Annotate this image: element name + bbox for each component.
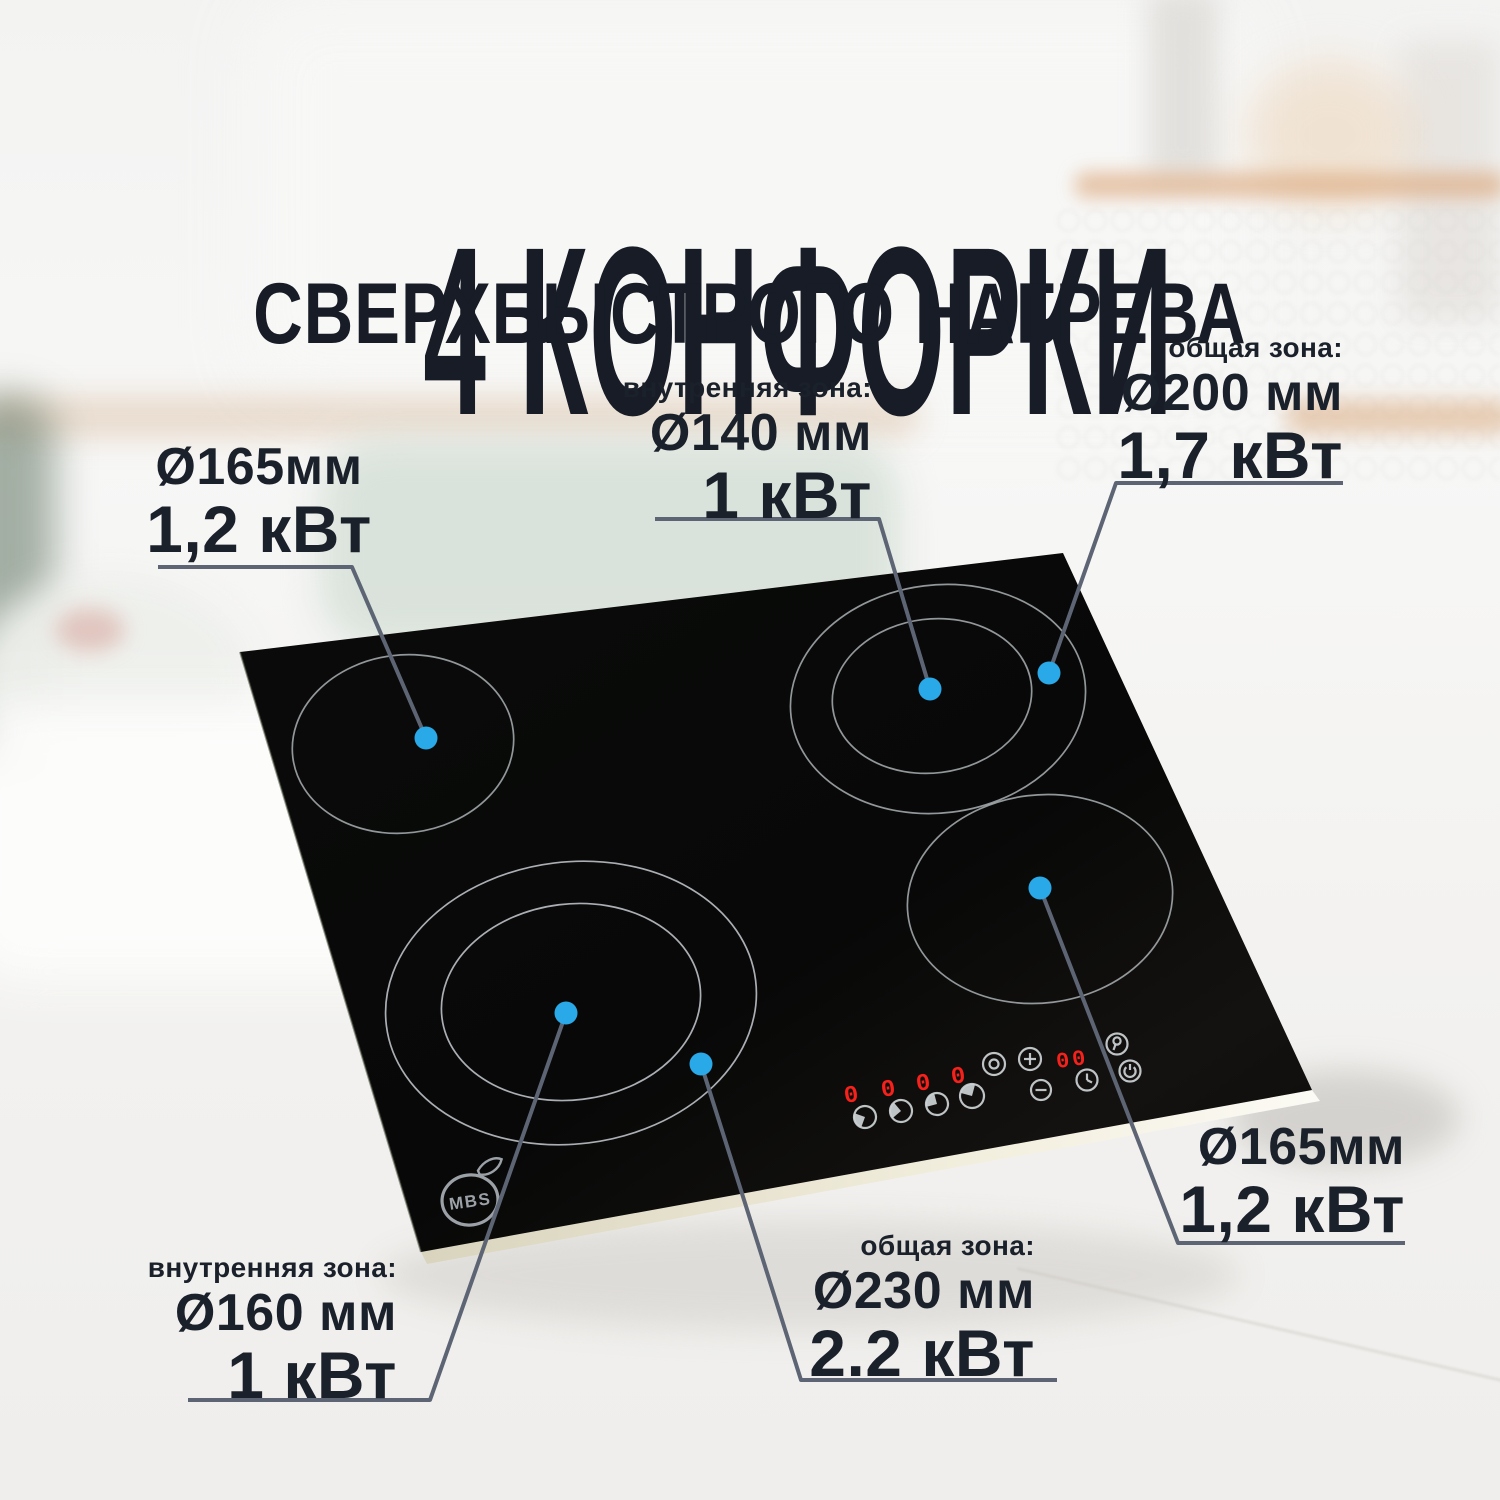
burner-diameter: Ø165мм bbox=[1105, 1120, 1405, 1174]
burner-power: 2.2 кВт bbox=[715, 1318, 1035, 1388]
callout-label-bottom-left-inner-zone: внутренняя зона: Ø160 мм 1 кВт bbox=[77, 1250, 397, 1410]
callout-dot-top-left-burner bbox=[415, 727, 438, 750]
callout-dot-bottom-left-inner-zone bbox=[555, 1002, 578, 1025]
burner-diameter: Ø160 мм bbox=[77, 1286, 397, 1340]
zone-caption: общая зона: bbox=[1023, 330, 1343, 366]
callout-label-bottom-right-burner: Ø165мм 1,2 кВт bbox=[1105, 1120, 1405, 1244]
burner-power: 1 кВт bbox=[77, 1340, 397, 1410]
burner-diameter: Ø200 мм bbox=[1023, 366, 1343, 420]
burner-power: 1,7 кВт bbox=[1023, 420, 1343, 490]
callout-dot-bottom-left-outer-zone bbox=[690, 1053, 713, 1076]
callout-label-top-right-outer-zone: общая зона: Ø200 мм 1,7 кВт bbox=[1023, 330, 1343, 490]
zone-caption: общая зона: bbox=[715, 1228, 1035, 1264]
callout-label-top-right-inner-zone: внутренняя зона: Ø140 мм 1 кВт bbox=[552, 370, 872, 530]
burner-diameter: Ø230 мм bbox=[715, 1264, 1035, 1318]
callout-label-top-left-burner: Ø165мм 1,2 кВт bbox=[109, 440, 409, 564]
burner-power: 1 кВт bbox=[552, 460, 872, 530]
callout-label-bottom-left-outer-zone: общая зона: Ø230 мм 2.2 кВт bbox=[715, 1228, 1035, 1388]
zone-caption: внутренняя зона: bbox=[77, 1250, 397, 1286]
callout-dot-bottom-right-burner bbox=[1029, 877, 1052, 900]
burner-diameter: Ø165мм bbox=[109, 440, 409, 494]
burner-diameter: Ø140 мм bbox=[552, 406, 872, 460]
zone-caption: внутренняя зона: bbox=[552, 370, 872, 406]
callout-dot-top-right-inner-zone bbox=[919, 678, 942, 701]
burner-power: 1,2 кВт bbox=[1105, 1174, 1405, 1244]
callout-dot-top-right-outer-zone bbox=[1038, 662, 1061, 685]
burner-power: 1,2 кВт bbox=[109, 494, 409, 564]
